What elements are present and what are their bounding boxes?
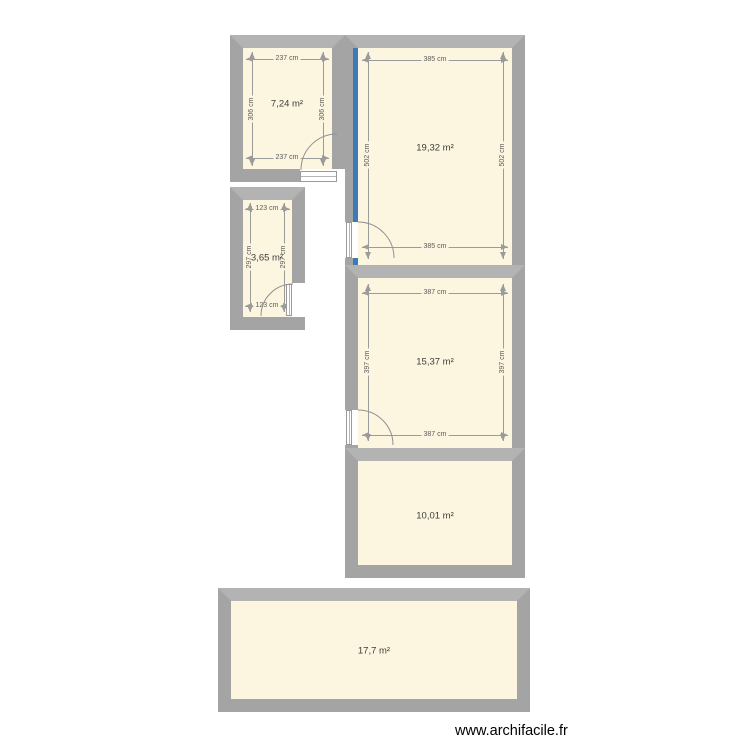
floor-plan-canvas: 237 cm 237 cm 306 cm 306 cm 7,24 m² 385 … xyxy=(0,0,750,750)
door-swing-arc xyxy=(358,222,394,258)
room-17-7[interactable]: 17,7 m² xyxy=(218,588,530,712)
door-swing-arc xyxy=(358,410,393,445)
dimension-label-width-bottom: 387 cm xyxy=(422,431,449,439)
dimension-label-height-right: 306 cm xyxy=(319,96,327,123)
room-area-label: 19,32 m² xyxy=(416,143,454,154)
door-swing-arc xyxy=(301,134,337,170)
room-area-label: 3,65 m² xyxy=(251,253,283,264)
room-area-label: 15,37 m² xyxy=(416,357,454,368)
room-19-32[interactable]: 385 cm 385 cm 502 cm 502 cm 19,32 m² xyxy=(345,35,525,278)
dimension-label-height-right: 502 cm xyxy=(499,142,507,169)
door-leaf[interactable] xyxy=(346,222,352,258)
dimension-label-height-left: 306 cm xyxy=(248,96,256,123)
room-7-24[interactable]: 237 cm 237 cm 306 cm 306 cm 7,24 m² xyxy=(230,35,345,182)
room-3-65[interactable]: 123 cm 123 cm 297 cm 297 cm 3,65 m² xyxy=(230,187,305,330)
room-15-37[interactable]: 387 cm 387 cm 397 cm 397 cm 15,37 m² xyxy=(345,265,525,461)
dimension-label-width-top: 387 cm xyxy=(422,289,449,297)
dimension-label-width-top: 123 cm xyxy=(254,205,281,213)
door-leaf[interactable] xyxy=(300,171,337,182)
dimension-label-height-left: 502 cm xyxy=(364,142,372,169)
dimension-label-width-bottom: 237 cm xyxy=(274,154,301,162)
dimension-label-width-top: 237 cm xyxy=(274,55,301,63)
watermark: www.archifacile.fr xyxy=(455,723,568,739)
door-opening xyxy=(292,283,305,317)
room-area-label: 17,7 m² xyxy=(358,646,390,657)
door-leaf[interactable] xyxy=(346,410,352,445)
dimension-label-height-right: 397 cm xyxy=(499,349,507,376)
highlighted-wall-lower[interactable] xyxy=(353,258,358,265)
room-area-label: 10,01 m² xyxy=(416,511,454,522)
dimension-label-width-top: 385 cm xyxy=(422,56,449,64)
highlighted-wall[interactable] xyxy=(353,48,358,222)
door-swing-arc xyxy=(261,284,293,316)
room-area-label: 7,24 m² xyxy=(271,99,303,110)
room-10-01[interactable]: 10,01 m² xyxy=(345,448,525,578)
dimension-label-height-left: 397 cm xyxy=(364,349,372,376)
dimension-label-width-bottom: 385 cm xyxy=(422,243,449,251)
